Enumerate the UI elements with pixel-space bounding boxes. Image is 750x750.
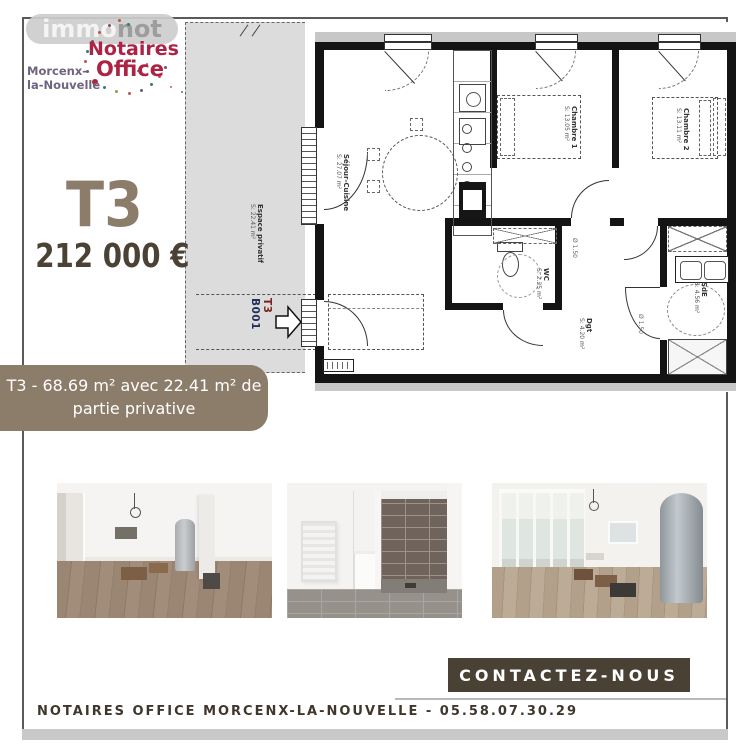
- photo3-transom: [499, 489, 585, 493]
- room-label-dgt: DgtS: 4.20 m²: [578, 318, 593, 349]
- photo3-dark-bag: [610, 583, 636, 597]
- cooktop: [459, 118, 486, 145]
- separator-line: [395, 698, 726, 700]
- wall: [727, 42, 736, 383]
- window-swing-arc: [385, 51, 429, 91]
- dot: [181, 91, 183, 93]
- pmr-annotation: Ø 1.50: [571, 238, 578, 258]
- terrace-divider: [196, 294, 316, 295]
- shower: [668, 339, 727, 375]
- banner-line2: partie privative: [0, 397, 268, 420]
- location-line1: Morcenx-: [27, 64, 87, 78]
- dot: [150, 83, 153, 86]
- footer-contact-line: NOTAIRES OFFICE MORCENX-LA-NOUVELLE - 05…: [37, 704, 657, 719]
- dot: [128, 92, 131, 95]
- entry-arrow-icon: [275, 304, 303, 340]
- photo-shower-room: [287, 483, 462, 618]
- contact-button[interactable]: CONTACTEZ-NOUS: [448, 658, 690, 692]
- dot: [127, 23, 130, 26]
- photo2-towel-radiator: [301, 521, 337, 582]
- wall: [610, 218, 624, 226]
- room-label-chambre2: Chambre 2S: 13.11 m²: [675, 108, 690, 151]
- double-sink-vanity: [675, 256, 729, 283]
- office-location: Morcenx- la-Nouvelle: [27, 64, 100, 93]
- entry-threshold: [301, 299, 317, 347]
- radiator: [322, 359, 354, 372]
- photo1-dark-object: [203, 573, 220, 589]
- photo-living-room-1: [57, 483, 272, 618]
- photo1-niche: [115, 527, 137, 539]
- photo-living-room-2: [492, 483, 707, 618]
- photo2-tile-floor: [287, 589, 462, 618]
- photo1-water-heater: [175, 519, 195, 571]
- room-label-sde: SdES: 4.56 m²: [693, 282, 708, 313]
- dot: [164, 66, 167, 69]
- location-line2: la-Nouvelle: [27, 78, 100, 92]
- room-label-espace-privatif: Espace privatifS: 22.41 m²: [249, 204, 264, 263]
- photo1-partition: [199, 495, 215, 579]
- dot: [115, 90, 118, 93]
- photo2-drain: [405, 583, 416, 588]
- wall: [543, 303, 562, 310]
- wall: [315, 42, 324, 128]
- closet-chambre2: [713, 98, 726, 156]
- listing-price: 212 000 €: [35, 236, 174, 275]
- closet: [493, 228, 557, 244]
- photo2-shower-ceiling: [381, 491, 447, 499]
- sofa-back-line: [328, 308, 424, 309]
- kitchen-sink: [459, 84, 486, 112]
- floor-plan: Espace privatifS: 22.41 m² Séjour-Cuisin…: [185, 22, 745, 392]
- chair: [410, 118, 423, 131]
- wall: [445, 226, 452, 310]
- dot: [170, 86, 172, 88]
- photo1-wire-loop: [130, 507, 141, 518]
- room-label-sejour: Séjour-CuisineS: 27.07 m²: [335, 154, 350, 211]
- window: [535, 34, 578, 50]
- wall: [660, 226, 667, 287]
- bottom-shadow-band: [22, 729, 728, 740]
- room-label-chambre1: Chambre 1S: 13.05 m²: [563, 106, 578, 149]
- dot: [84, 60, 87, 63]
- window: [384, 34, 432, 50]
- pmr-annotation: Ø 1.50: [637, 314, 644, 334]
- oven: [459, 182, 486, 218]
- dot: [98, 31, 101, 34]
- dot: [108, 24, 111, 27]
- photo3-radiator: [586, 553, 604, 560]
- wall: [445, 303, 503, 310]
- listing-type: T3: [30, 168, 179, 241]
- photo3-window: [608, 521, 638, 544]
- photo3-wire-loop: [589, 501, 599, 511]
- office-text: Office: [96, 57, 164, 81]
- dot: [103, 86, 106, 89]
- notaires-office-logo: Notaires Office Morcenx- la-Nouvelle: [0, 0, 220, 110]
- exterior-sill: [315, 383, 736, 391]
- wall: [612, 50, 619, 168]
- photo1-box: [121, 567, 147, 580]
- sofa: [328, 294, 424, 350]
- dot: [140, 89, 143, 92]
- pillow: [699, 100, 711, 156]
- unit-label: B001T3: [249, 298, 273, 330]
- photo3-water-heater: [660, 493, 703, 603]
- bay-window: [301, 127, 317, 225]
- wall: [658, 218, 727, 226]
- wall: [315, 374, 736, 383]
- dining-table: [382, 135, 458, 211]
- door-swing-arc: [571, 180, 609, 218]
- banner-line1: T3 - 68.69 m² avec 22.41 m² de: [0, 374, 268, 397]
- wall: [315, 224, 324, 300]
- terrace-divider: [196, 349, 316, 350]
- chair: [367, 148, 380, 161]
- wall: [660, 340, 667, 374]
- surface-banner: T3 - 68.69 m² avec 22.41 m² de partie pr…: [0, 365, 268, 431]
- photo1-box: [149, 563, 168, 573]
- door-leaf: [625, 287, 660, 288]
- closet: [668, 226, 727, 252]
- door-swing-arc: [624, 226, 658, 260]
- chair: [367, 180, 380, 193]
- dot: [118, 19, 121, 22]
- room-label-wc: WCS: 2.25 m²: [535, 268, 550, 299]
- door-swing-arc: [503, 310, 543, 346]
- window: [658, 34, 701, 50]
- photo3-box: [574, 569, 593, 580]
- pillow: [500, 98, 515, 156]
